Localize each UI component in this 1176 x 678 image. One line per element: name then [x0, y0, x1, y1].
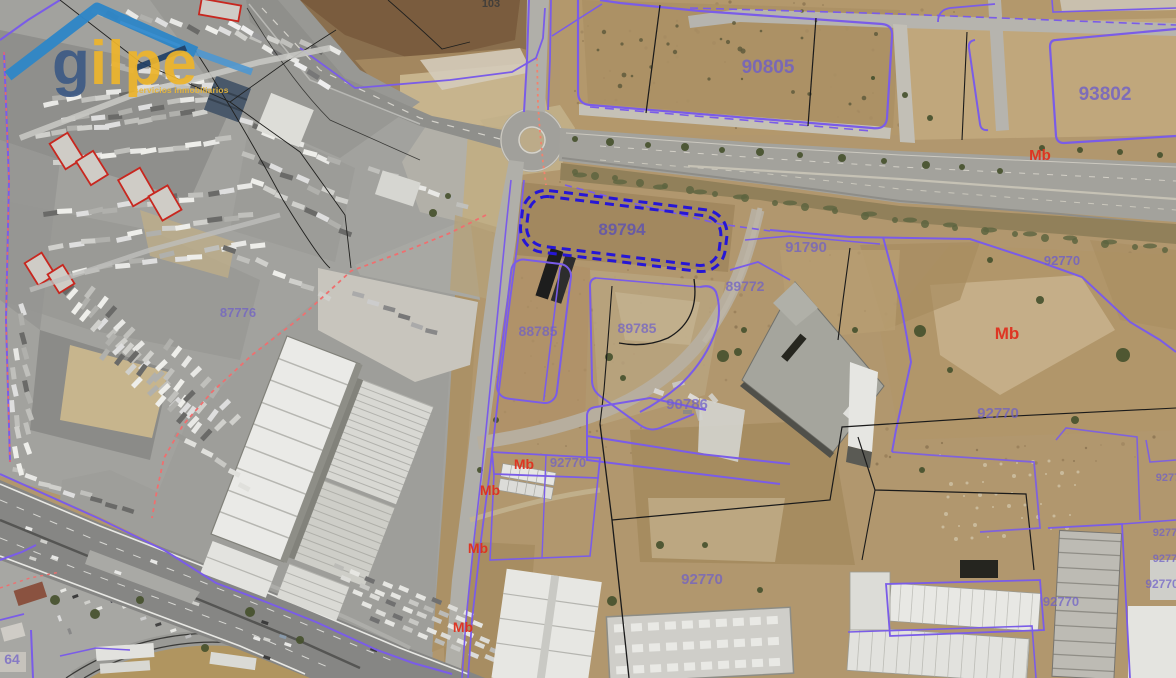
svg-text:92770: 92770: [977, 405, 1019, 422]
svg-text:90786: 90786: [666, 396, 708, 413]
svg-text:88785: 88785: [519, 323, 558, 339]
svg-text:64: 64: [4, 651, 20, 667]
svg-text:87776: 87776: [220, 305, 256, 320]
svg-text:89794: 89794: [598, 220, 646, 239]
svg-text:92770: 92770: [1145, 577, 1176, 591]
svg-text:92770: 92770: [681, 571, 723, 588]
svg-text:103: 103: [482, 0, 500, 10]
svg-text:89785: 89785: [618, 320, 657, 336]
svg-text:Mb: Mb: [995, 324, 1020, 343]
svg-text:92770: 92770: [1153, 527, 1176, 539]
svg-text:89772: 89772: [726, 278, 765, 294]
svg-text:Mb: Mb: [453, 619, 473, 635]
svg-text:92770: 92770: [1043, 594, 1079, 609]
svg-text:92770: 92770: [1044, 253, 1080, 268]
svg-text:92770: 92770: [1153, 553, 1176, 565]
svg-text:Mb: Mb: [480, 482, 500, 498]
svg-text:92770: 92770: [550, 455, 586, 470]
svg-text:Mb: Mb: [1029, 147, 1051, 164]
svg-text:9277: 9277: [1156, 472, 1176, 484]
svg-text:93802: 93802: [1079, 84, 1132, 105]
svg-text:91790: 91790: [785, 239, 827, 256]
svg-text:servicios inmobiliarios: servicios inmobiliarios: [134, 85, 229, 95]
svg-text:90805: 90805: [742, 57, 795, 78]
svg-text:Mb: Mb: [468, 540, 488, 556]
svg-text:Mb: Mb: [514, 456, 534, 472]
